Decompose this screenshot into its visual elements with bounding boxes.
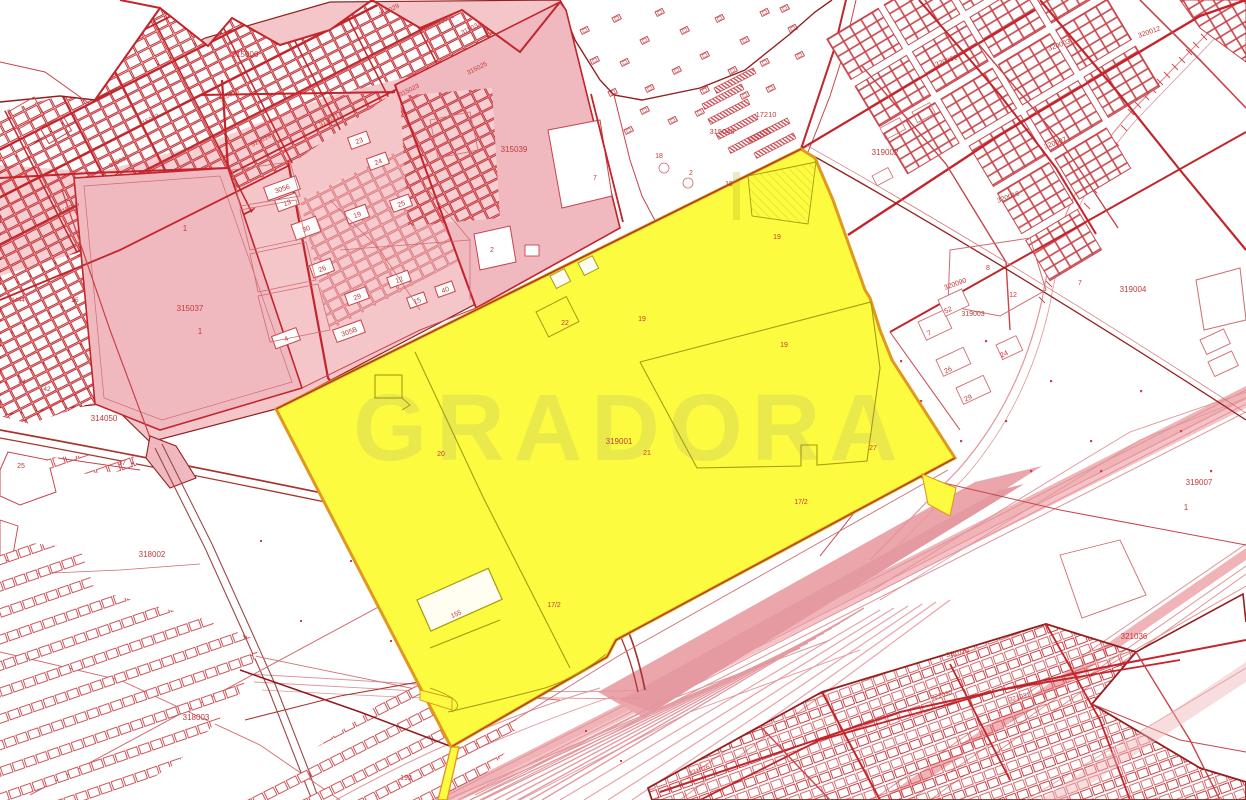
svg-text:42: 42 <box>43 386 51 393</box>
svg-text:18: 18 <box>655 153 663 160</box>
svg-text:19: 19 <box>638 316 646 323</box>
svg-text:GRADORA: GRADORA <box>353 375 907 481</box>
svg-text:44: 44 <box>18 379 26 386</box>
svg-text:7: 7 <box>593 175 597 182</box>
svg-text:37: 37 <box>118 460 126 467</box>
svg-text:17/2: 17/2 <box>547 602 561 609</box>
svg-text:25: 25 <box>17 463 25 470</box>
svg-text:22: 22 <box>561 320 569 327</box>
svg-text:319002: 319002 <box>872 148 899 157</box>
svg-text:12: 12 <box>1009 292 1017 299</box>
svg-text:25: 25 <box>71 297 79 304</box>
svg-text:318003: 318003 <box>183 713 210 722</box>
svg-text:1: 1 <box>1184 503 1189 512</box>
svg-text:319003: 319003 <box>961 311 984 318</box>
svg-text:315040: 315040 <box>709 127 734 136</box>
svg-text:1: 1 <box>183 224 188 233</box>
svg-text:315037: 315037 <box>177 304 204 313</box>
svg-text:19: 19 <box>780 342 788 349</box>
svg-text:318002: 318002 <box>139 550 166 559</box>
svg-text:19: 19 <box>773 234 781 241</box>
svg-text:1444: 1444 <box>11 298 25 304</box>
svg-text:192: 192 <box>400 775 412 782</box>
svg-text:7: 7 <box>1078 280 1082 287</box>
svg-text:319004: 319004 <box>1120 285 1147 294</box>
svg-text:17/2: 17/2 <box>794 499 808 506</box>
svg-text:321036: 321036 <box>1121 632 1148 641</box>
svg-text:319007: 319007 <box>1186 478 1213 487</box>
svg-text:1: 1 <box>198 327 203 336</box>
svg-text:19: 19 <box>725 181 733 188</box>
svg-text:2: 2 <box>689 170 693 177</box>
svg-text:315006: 315006 <box>232 50 259 59</box>
svg-text:8: 8 <box>986 265 990 272</box>
svg-text:314050: 314050 <box>91 414 118 423</box>
svg-text:2: 2 <box>490 247 494 254</box>
svg-text:17210: 17210 <box>756 110 777 119</box>
svg-text:315039: 315039 <box>501 145 528 154</box>
